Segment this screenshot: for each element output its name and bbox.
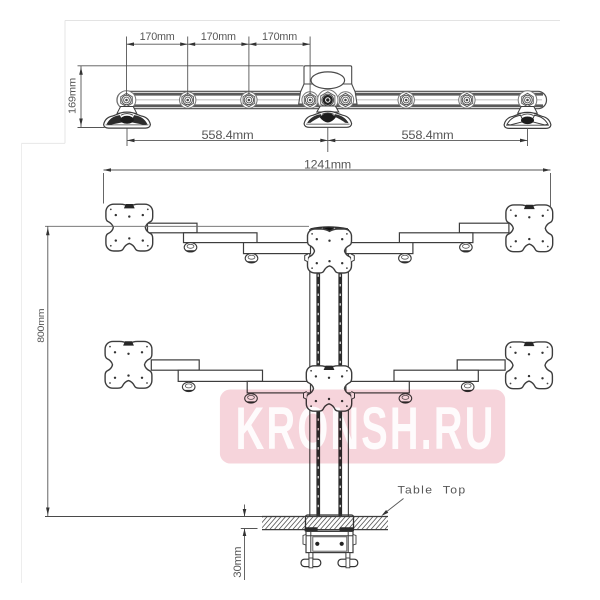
svg-text:Table Top: Table Top	[398, 484, 467, 496]
svg-text:558.4mm: 558.4mm	[202, 128, 254, 142]
svg-text:170mm: 170mm	[140, 31, 175, 43]
svg-text:30mm: 30mm	[232, 547, 244, 578]
svg-text:170mm: 170mm	[262, 31, 297, 43]
svg-text:800mm: 800mm	[36, 308, 46, 343]
svg-text:558.4mm: 558.4mm	[402, 128, 454, 142]
svg-text:170mm: 170mm	[201, 31, 236, 43]
svg-text:169mm: 169mm	[68, 78, 79, 114]
